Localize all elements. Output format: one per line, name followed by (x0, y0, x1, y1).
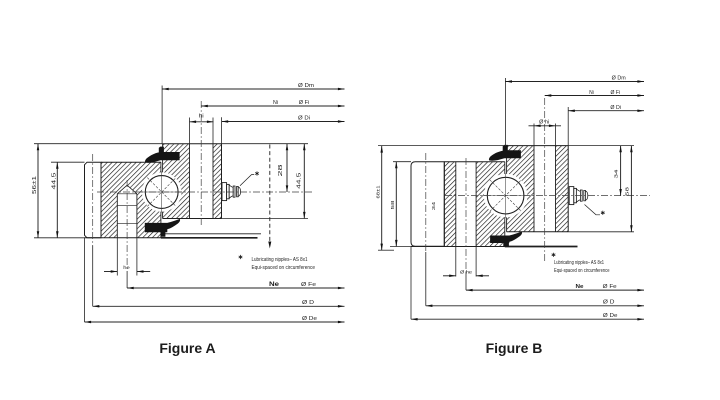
svg-text:68±1: 68±1 (375, 185, 380, 199)
svg-text:Figure B: Figure B (486, 340, 543, 356)
svg-text:Equi-spaced on circumference: Equi-spaced on circumference (554, 268, 610, 274)
svg-text:Ø Dm: Ø Dm (298, 83, 314, 89)
svg-text:Ø Fe: Ø Fe (603, 284, 617, 290)
svg-text:Ø Di: Ø Di (610, 105, 621, 111)
svg-text:Ni: Ni (589, 90, 594, 96)
svg-text:Ø D: Ø D (603, 300, 615, 306)
svg-text:Lubricating nipples– AS 8x1: Lubricating nipples– AS 8x1 (554, 260, 604, 266)
svg-text:Ne: Ne (269, 282, 280, 288)
svg-text:56±1: 56±1 (32, 176, 38, 194)
svg-text:44.5: 44.5 (296, 173, 302, 189)
svg-text:Ø De: Ø De (603, 313, 618, 319)
svg-text:Ø Di: Ø Di (298, 116, 310, 122)
svg-text:Ø Fi: Ø Fi (611, 90, 621, 96)
svg-text:58: 58 (390, 200, 395, 210)
svg-text:Ø Dm: Ø Dm (612, 76, 626, 82)
svg-text:28: 28 (278, 164, 284, 176)
svg-text:Ø Fe: Ø Fe (301, 282, 316, 288)
svg-text:Ø De: Ø De (302, 316, 317, 322)
svg-text:Ø Fi: Ø Fi (299, 100, 310, 106)
svg-text:he: he (123, 265, 130, 271)
svg-text:Ni: Ni (273, 100, 278, 106)
svg-text:Ø D: Ø D (302, 300, 314, 306)
svg-text:Lubricating nipples– AS 8x1: Lubricating nipples– AS 8x1 (252, 257, 308, 263)
svg-text:Ne: Ne (576, 284, 584, 290)
svg-text:34: 34 (614, 169, 619, 179)
svg-text:34: 34 (431, 201, 436, 210)
svg-text:Figure A: Figure A (159, 340, 215, 356)
svg-text:Equi-spaced on circumference: Equi-spaced on circumference (252, 265, 316, 271)
svg-text:hi: hi (199, 114, 204, 120)
svg-text:Ø hi: Ø hi (539, 119, 549, 125)
svg-text:44.5: 44.5 (52, 173, 58, 190)
svg-text:58: 58 (624, 186, 629, 196)
